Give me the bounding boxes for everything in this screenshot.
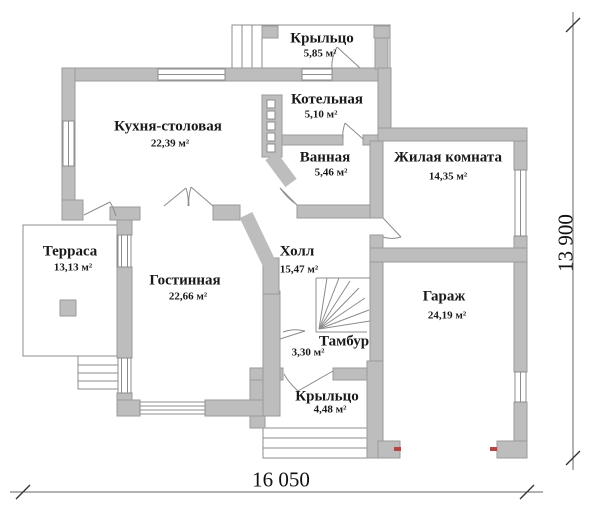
room-area-vestibule: 3,30 м² — [292, 348, 325, 359]
room-label-garage: Гараж — [423, 290, 465, 305]
room-label-hall: Холл — [280, 245, 315, 260]
room-area-garage: 24,19 м² — [428, 311, 466, 322]
door-kitchen-hall-left — [164, 188, 188, 206]
window-living-room-east — [515, 170, 526, 236]
room-area-hall: 15,47 м² — [280, 265, 318, 276]
door-boiler-bath — [343, 123, 363, 139]
room-area-lounge: 22,66 м² — [169, 292, 207, 303]
door-bath-hall — [280, 188, 297, 205]
window-kitchen-top — [158, 69, 225, 80]
window-lounge-terrace — [118, 235, 131, 267]
floor-plan: Крыльцо 5,85 м² Котельная 5,10 м² Кухня-… — [0, 0, 600, 527]
window-kitchen-left — [63, 121, 74, 166]
window-boiler-top — [302, 69, 332, 80]
dimension-width-label: 16 050 — [252, 470, 310, 491]
room-label-lounge: Гостинная — [149, 274, 220, 289]
room-label-kitchen: Кухня-столовая — [114, 120, 222, 135]
garage-door-markers — [394, 447, 497, 451]
room-area-terrace: 13,13 м² — [54, 263, 92, 274]
room-label-bathroom: Ванная — [300, 151, 350, 166]
stair-winder — [316, 278, 370, 332]
door-hall-vestibule — [280, 330, 305, 339]
terrace-column — [60, 300, 76, 316]
room-label-terrace: Терраса — [43, 245, 98, 260]
dimension-height-label: 13 900 — [556, 214, 577, 272]
window-lounge-south — [140, 402, 205, 414]
room-area-porch-top: 5,85 м² — [304, 49, 337, 60]
window-garage-east — [515, 372, 526, 402]
room-area-kitchen: 22,39 м² — [151, 139, 189, 150]
room-label-boiler: Котельная — [291, 93, 363, 108]
porch-bottom-steps — [263, 428, 367, 458]
room-label-porch-bottom: Крыльцо — [295, 390, 358, 405]
room-area-porch-bottom: 4,48 м² — [314, 405, 347, 416]
door-kitchen-hall-right — [189, 187, 213, 206]
room-label-vestibule: Тамбур — [319, 335, 369, 350]
window-lounge-west — [118, 358, 131, 393]
room-area-living-room: 14,35 м² — [429, 172, 467, 183]
room-area-boiler: 5,10 м² — [305, 110, 338, 121]
room-label-living-room: Жилая комната — [394, 151, 502, 166]
door-hall-living-room — [383, 218, 401, 239]
chimney-vents — [267, 100, 275, 152]
room-label-porch-top: Крыльцо — [290, 32, 353, 47]
room-area-bathroom: 5,46 м² — [315, 168, 348, 179]
